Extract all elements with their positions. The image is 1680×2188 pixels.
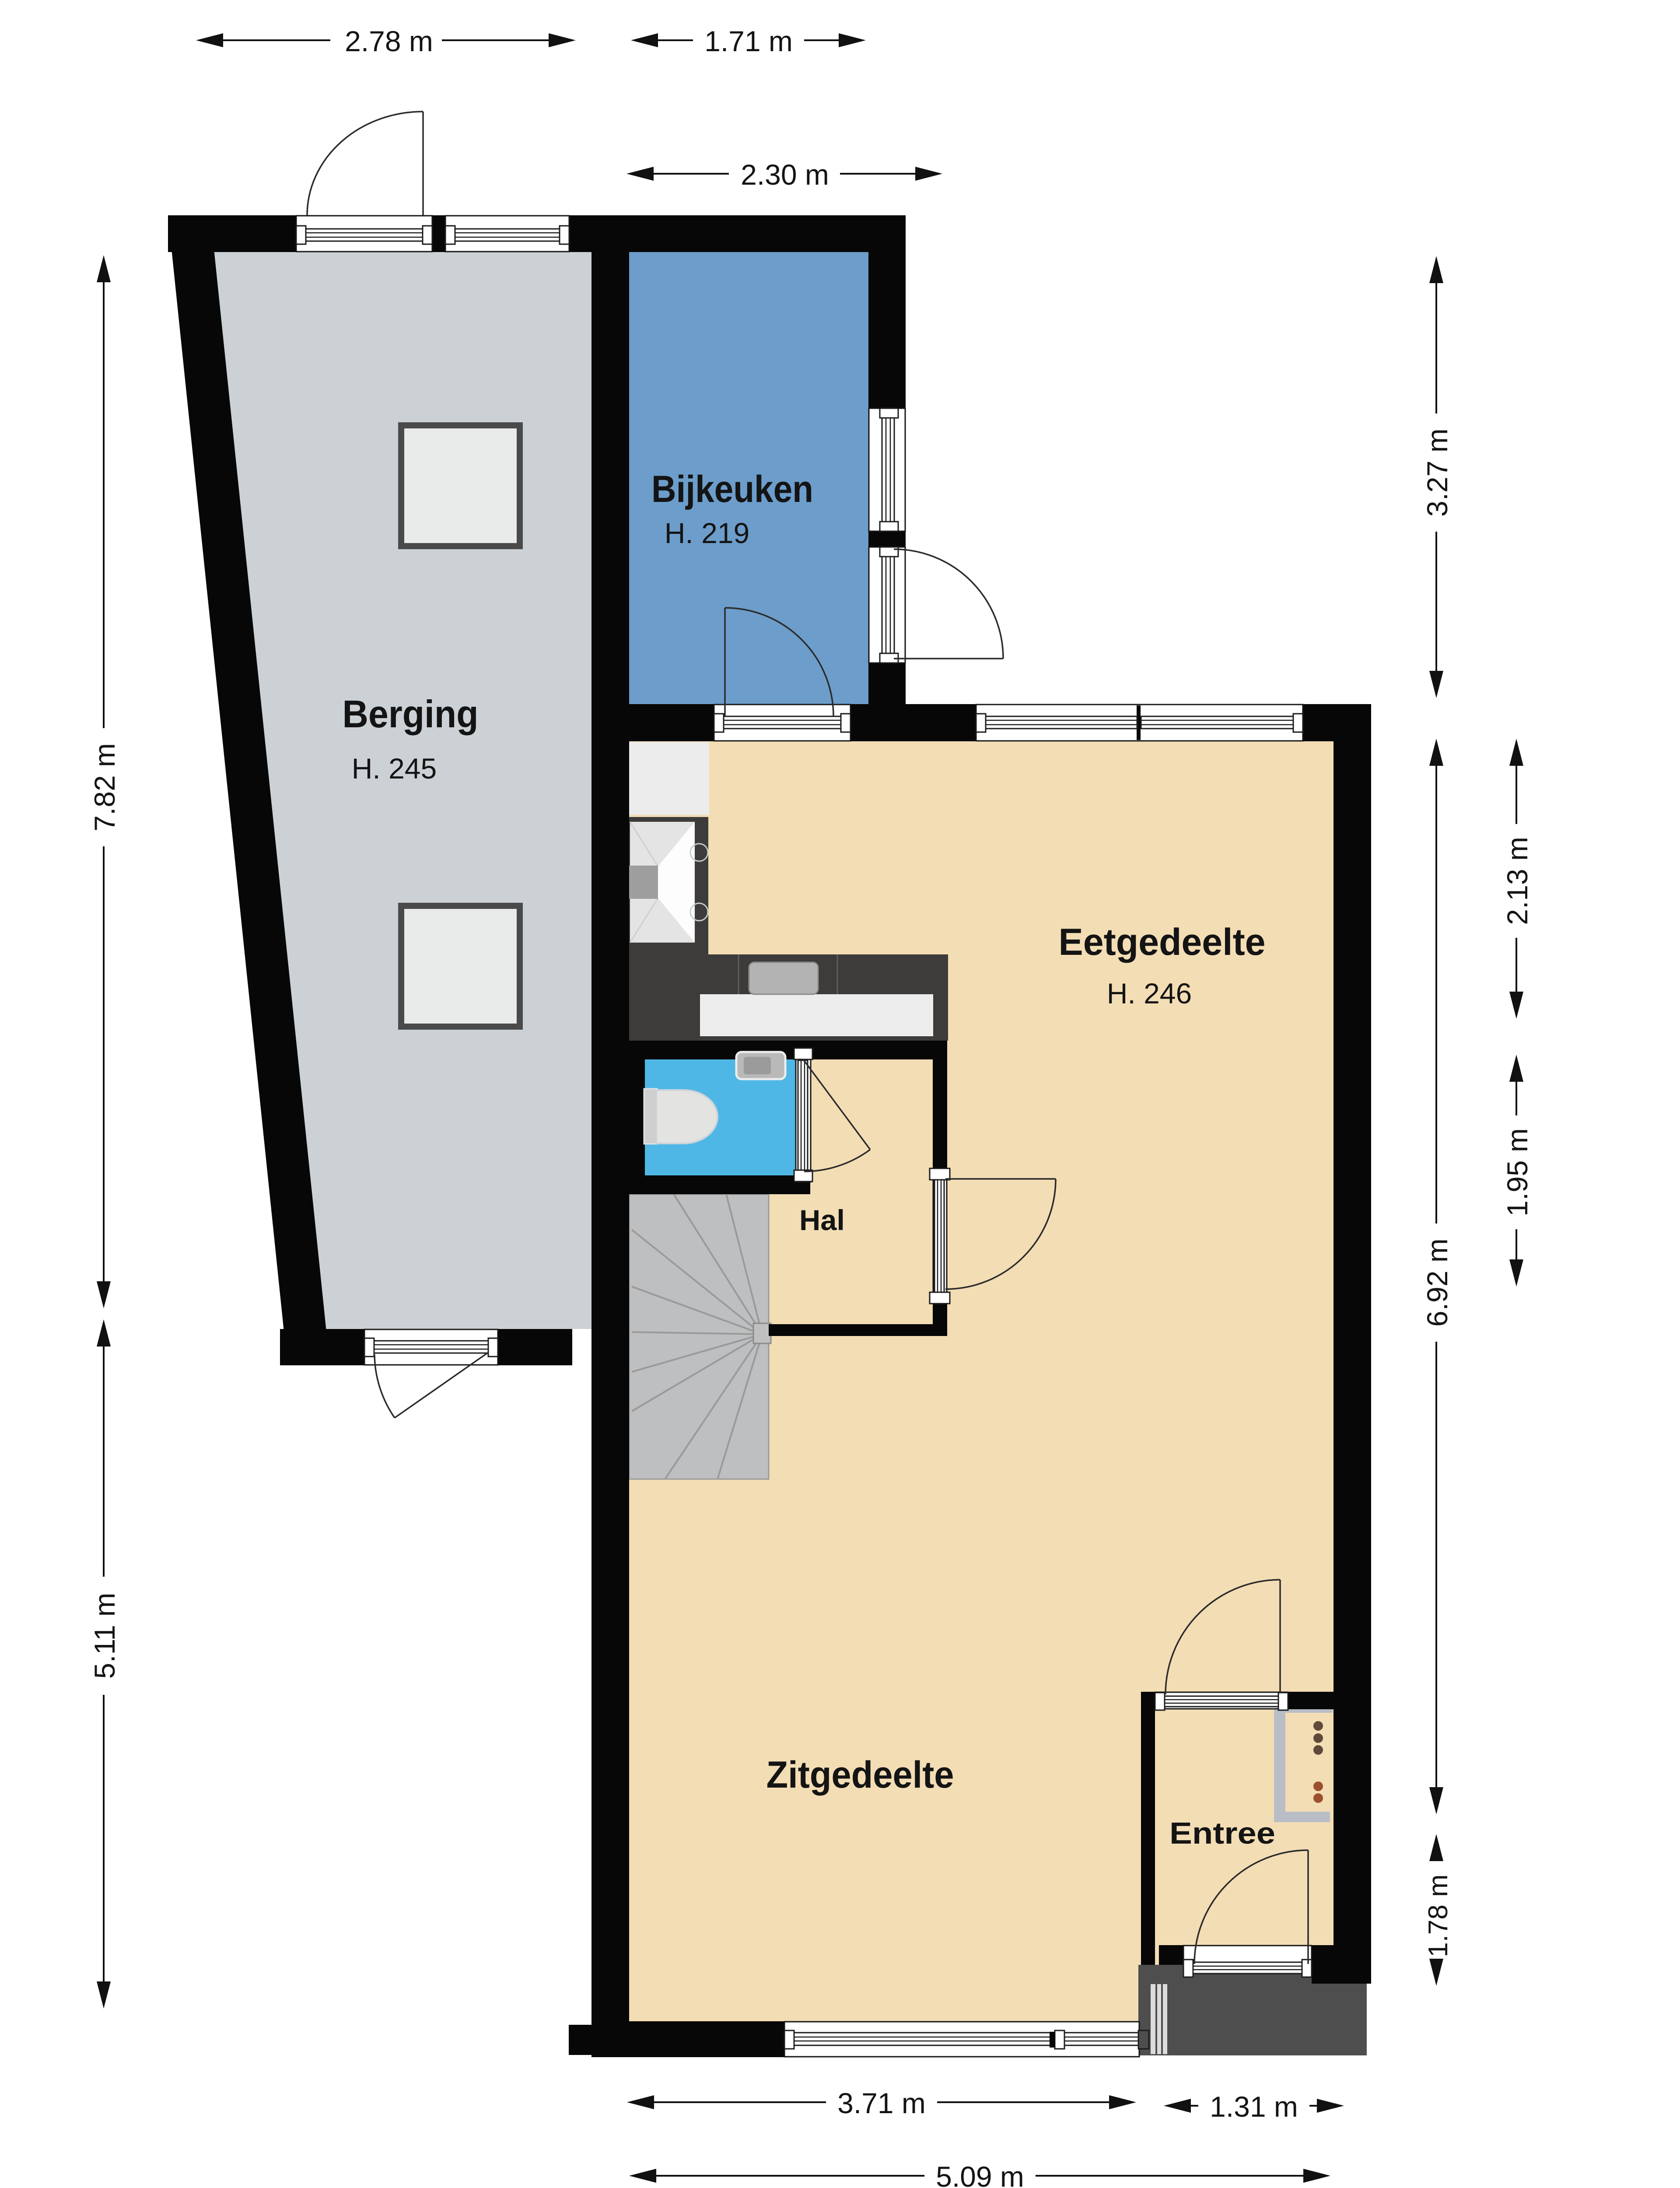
svg-text:Bijkeuken: Bijkeuken: [651, 468, 813, 510]
svg-text:5.11 m: 5.11 m: [88, 1593, 121, 1679]
svg-text:3.27 m: 3.27 m: [1421, 428, 1453, 517]
svg-text:1.78 m: 1.78 m: [1423, 1874, 1453, 1957]
svg-text:2.78 m: 2.78 m: [345, 25, 433, 57]
svg-text:H. 219: H. 219: [665, 517, 749, 549]
svg-text:5.09 m: 5.09 m: [936, 2160, 1024, 2188]
svg-text:Hal: Hal: [799, 1204, 845, 1236]
svg-text:H. 246: H. 246: [1107, 977, 1192, 1010]
svg-text:3.71 m: 3.71 m: [837, 2087, 926, 2119]
svg-text:6.92 m: 6.92 m: [1421, 1238, 1453, 1327]
svg-text:Entree: Entree: [1169, 1816, 1275, 1850]
svg-text:7.82 m: 7.82 m: [88, 743, 121, 831]
svg-text:Zitgedeelte: Zitgedeelte: [766, 1754, 954, 1796]
svg-text:Berging: Berging: [343, 692, 479, 736]
svg-text:H. 245: H. 245: [352, 752, 437, 785]
svg-text:2.30 m: 2.30 m: [741, 158, 829, 191]
svg-text:2.13 m: 2.13 m: [1501, 837, 1533, 925]
svg-text:1.95 m: 1.95 m: [1501, 1128, 1533, 1217]
svg-text:1.31 m: 1.31 m: [1210, 2090, 1298, 2123]
svg-text:Eetgedeelte: Eetgedeelte: [1059, 921, 1266, 963]
svg-text:1.71 m: 1.71 m: [704, 25, 793, 57]
